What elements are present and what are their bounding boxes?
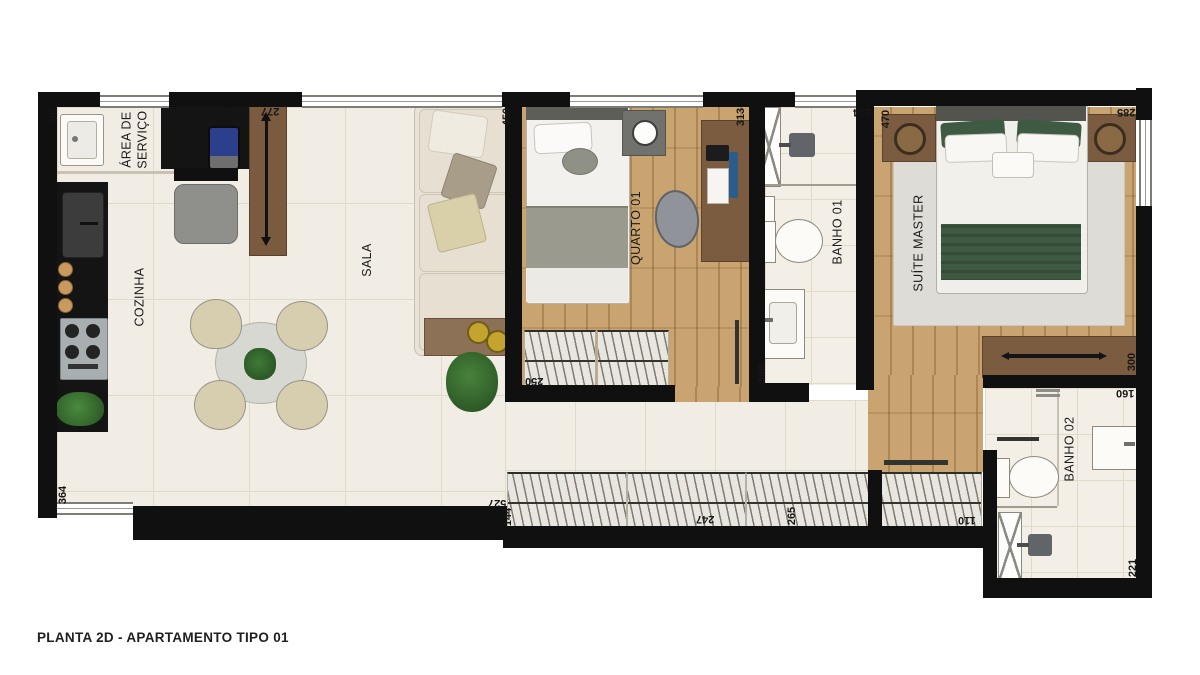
bed-single-blanket	[526, 206, 628, 270]
suite-sliding-door	[884, 460, 948, 465]
plan-caption: PLANTA 2D - APARTAMENTO TIPO 01	[37, 630, 289, 645]
dining-chair-sw	[194, 380, 246, 430]
dryer-appliance	[174, 184, 238, 244]
shower-head-banho01-icon	[789, 133, 815, 157]
burner-2	[86, 324, 100, 338]
wardrobe-quarto01-right	[597, 330, 669, 389]
wall-right-top	[1136, 88, 1152, 120]
kitchen-plant	[56, 392, 104, 426]
toilet-bowl-banho02	[1009, 456, 1059, 498]
lamp-left-icon	[894, 123, 926, 155]
notepad-icon	[707, 168, 729, 204]
dresser-arrow-right-icon	[1099, 352, 1107, 360]
cabinet-arrow-down-icon	[261, 237, 271, 246]
burner-3	[65, 345, 79, 359]
floor-wood-suite-corridor	[868, 375, 983, 472]
bed-double-blanket	[941, 224, 1081, 282]
wall-service-stub	[174, 168, 238, 181]
wall-banho02-top	[983, 375, 1136, 388]
wardrobe-corridor-1	[507, 472, 627, 531]
wall-top-5	[856, 90, 1152, 106]
bed-double-headboard	[936, 104, 1086, 121]
kitchen-sink	[62, 192, 104, 258]
dresser-arrow-left-icon	[1001, 352, 1009, 360]
wall-left	[38, 92, 57, 518]
wall-quarto01-bottom	[505, 385, 675, 402]
wardrobe-corridor-2	[627, 472, 746, 531]
wall-top-1	[38, 92, 100, 107]
wall-banho02-left	[983, 450, 997, 590]
dining-chair-nw	[190, 299, 242, 349]
clock-icon	[632, 120, 658, 146]
wall-quarto01-banho01	[749, 92, 765, 385]
banho02-shelf-icon	[1036, 389, 1060, 392]
vanity-banho02	[1092, 426, 1138, 470]
quarto01-door-leaf	[735, 320, 739, 384]
wall-sala-quarto01	[505, 92, 522, 392]
shower-partition-banho01	[765, 184, 856, 186]
wall-bottom-right	[503, 526, 995, 548]
shower-arm-banho01	[779, 143, 791, 147]
wood-bowl-2	[58, 280, 73, 295]
toilet-bowl-banho01	[775, 219, 823, 263]
cooktop-knobs	[68, 364, 98, 369]
entry-opening	[57, 502, 133, 515]
shower-arm-banho02	[1017, 543, 1029, 547]
room-label-area-servico-line1: ÁREA DE	[119, 111, 135, 169]
wall-banho01-suite	[856, 92, 874, 390]
wall-banho02-bottom	[983, 578, 1152, 598]
sofa-pillow-white	[427, 109, 488, 158]
floor-wood-quarto01-door	[675, 387, 749, 402]
dining-chair-ne	[276, 301, 328, 351]
lamp-right-icon	[1094, 123, 1126, 155]
banho02-divider-v	[1057, 390, 1059, 506]
window-banho01	[795, 95, 856, 108]
vanity-faucet-banho02-icon	[1124, 442, 1135, 446]
shower-glass-banho02	[998, 512, 1022, 582]
cabinet-arrow-up-icon	[261, 112, 271, 121]
wall-right-mid	[1136, 206, 1152, 392]
vanity-basin-banho01	[769, 302, 797, 344]
laundry-faucet-icon	[72, 136, 78, 142]
wardrobe-corridor-3	[746, 472, 870, 531]
pillow-accent-center	[992, 152, 1034, 178]
room-label-area-servico-line2: SERVIÇO	[135, 111, 151, 169]
kitchen-sink-faucet-icon	[80, 222, 98, 225]
room-label-area-servico: ÁREA DE SERVIÇO	[112, 85, 158, 195]
burner-1	[65, 324, 79, 338]
banho02-divider-h	[997, 506, 1057, 508]
cabinet-arrow-line	[265, 120, 268, 238]
wall-right-banho02	[1136, 390, 1152, 598]
sala-plant	[446, 352, 498, 412]
banho02-door-leaf	[997, 437, 1039, 441]
dining-centerpiece-plant	[244, 348, 276, 380]
burner-4	[86, 345, 100, 359]
laptop-icon	[706, 145, 729, 161]
wood-bowl-1	[58, 262, 73, 277]
wardrobe-suite	[880, 472, 982, 531]
monitor-icon	[729, 152, 738, 198]
bed-double-foot	[941, 280, 1081, 292]
dining-chair-se	[276, 380, 328, 430]
wardrobe-quarto01-left	[524, 330, 596, 389]
floor-plan: ÁREA DE SERVIÇO COZINHA SALA QUARTO 01 B…	[0, 0, 1200, 675]
wall-banho01-bottom	[749, 383, 809, 402]
wall-corridor-stub	[868, 470, 882, 528]
wood-bowl-3	[58, 298, 73, 313]
window-quarto01	[570, 95, 703, 108]
bed-single-foot	[526, 268, 628, 302]
window-sala	[302, 95, 502, 108]
window-suite	[1139, 120, 1152, 206]
wall-bottom-left	[133, 506, 507, 540]
tall-cabinet	[249, 104, 287, 256]
wall-top-2	[169, 92, 302, 107]
dresser-handle	[1008, 354, 1100, 358]
shower-head-banho02-icon	[1028, 534, 1052, 556]
washing-machine	[208, 126, 240, 160]
bed-single-round-pillow	[562, 148, 598, 175]
